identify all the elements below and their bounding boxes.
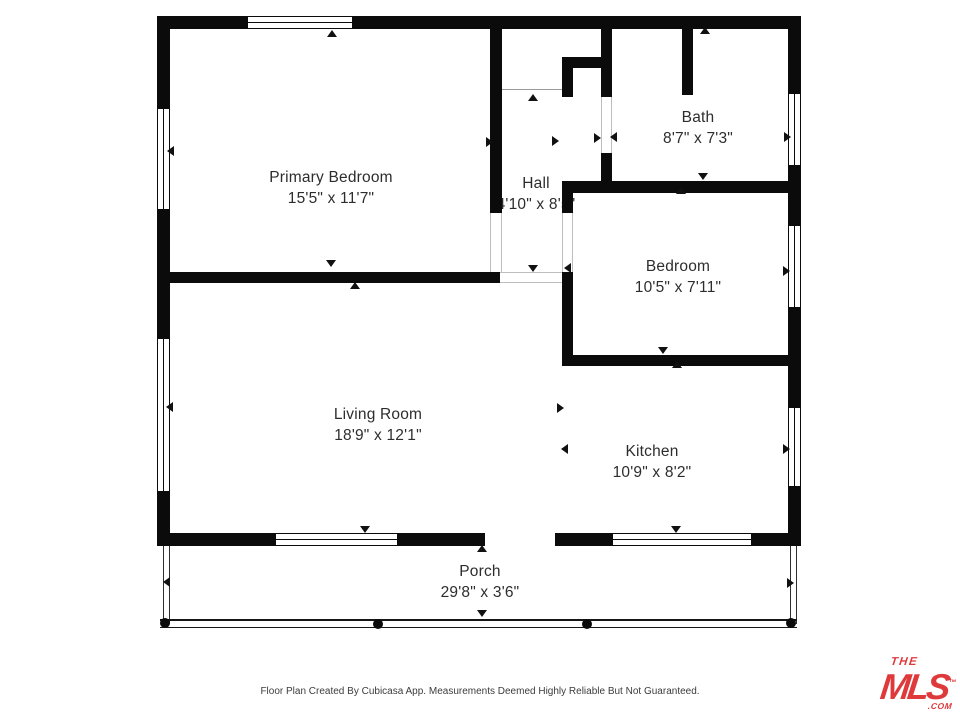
direction-marker <box>477 545 487 552</box>
direction-marker <box>700 27 710 34</box>
window-living-room-south <box>275 533 398 546</box>
porch-post <box>160 618 170 628</box>
wall-exterior-bottom <box>555 533 612 546</box>
room-dimensions: 8'7" x 7'3" <box>637 128 759 149</box>
window-primary-bedroom-west <box>157 108 170 210</box>
direction-marker <box>528 265 538 272</box>
window-kitchen-south <box>612 533 752 546</box>
wall-hall-nook-vertical <box>562 57 573 97</box>
direction-marker <box>360 526 370 533</box>
themls-logo: THE MLS™ .COM <box>878 657 960 710</box>
floor-plan: Primary Bedroom 15'5" x 11'7" Hall 4'10"… <box>0 0 960 720</box>
direction-marker <box>326 260 336 267</box>
wall-bath-divider <box>682 16 693 95</box>
direction-marker <box>783 266 790 276</box>
wall-exterior-bottom <box>752 533 801 546</box>
porch-post <box>786 618 796 628</box>
room-label-bedroom: Bedroom 10'5" x 7'11" <box>592 256 764 298</box>
door-opening-bath <box>601 97 612 153</box>
direction-marker <box>327 30 337 37</box>
room-dimensions: 15'5" x 11'7" <box>221 188 441 209</box>
direction-marker <box>676 187 686 194</box>
window-living-room-west <box>157 338 170 492</box>
room-dimensions: 10'5" x 7'11" <box>592 277 764 298</box>
wall-hall-east-upper <box>601 16 612 97</box>
room-name: Porch <box>395 561 565 582</box>
room-name: Primary Bedroom <box>221 167 441 188</box>
room-dimensions: 10'9" x 8'2" <box>566 462 738 483</box>
direction-marker <box>528 94 538 101</box>
porch-post <box>373 619 383 629</box>
room-dimensions: 29'8" x 3'6" <box>395 582 565 603</box>
direction-marker <box>784 132 791 142</box>
direction-marker <box>671 526 681 533</box>
room-label-kitchen: Kitchen 10'9" x 8'2" <box>566 441 738 483</box>
wall-bedroom-west-upper <box>562 193 573 213</box>
direction-marker <box>486 137 493 147</box>
logo-trademark: ™ <box>948 678 957 687</box>
window-bath-east <box>788 93 801 166</box>
room-name: Bath <box>637 107 759 128</box>
room-label-primary-bedroom: Primary Bedroom 15'5" x 11'7" <box>221 167 441 209</box>
direction-marker <box>163 577 170 587</box>
footer-disclaimer: Floor Plan Created By Cubicasa App. Meas… <box>0 686 960 697</box>
wall-exterior-bottom <box>398 533 485 546</box>
window-primary-bedroom-north <box>247 16 353 29</box>
direction-marker <box>167 146 174 156</box>
direction-marker <box>557 403 564 413</box>
room-name: Kitchen <box>566 441 738 462</box>
wall-hall-east-lower <box>601 153 612 183</box>
direction-marker <box>610 132 617 142</box>
wall-bedroom-west-lower <box>562 272 573 366</box>
logo-word-mls: MLS™ <box>878 669 960 705</box>
direction-marker <box>658 347 668 354</box>
room-dimensions: 18'9" x 12'1" <box>283 425 473 446</box>
direction-marker <box>594 133 601 143</box>
room-label-bath: Bath 8'7" x 7'3" <box>637 107 759 149</box>
wall-exterior-bottom <box>157 533 275 546</box>
direction-marker <box>787 578 794 588</box>
opening-hall-nook <box>502 89 562 90</box>
room-name: Bedroom <box>592 256 764 277</box>
direction-marker <box>564 263 571 273</box>
direction-marker <box>698 173 708 180</box>
door-opening-primary-bedroom <box>490 213 502 272</box>
direction-marker <box>783 444 790 454</box>
direction-marker <box>561 444 568 454</box>
opening-hall-to-living-room <box>500 272 562 283</box>
direction-marker <box>166 402 173 412</box>
direction-marker <box>477 610 487 617</box>
wall-primary-bedroom-south <box>157 272 500 283</box>
room-label-porch: Porch 29'8" x 3'6" <box>395 561 565 603</box>
porch-edge-bottom <box>160 619 797 628</box>
direction-marker <box>350 282 360 289</box>
room-label-living-room: Living Room 18'9" x 12'1" <box>283 404 473 446</box>
porch-post <box>582 619 592 629</box>
wall-hall-west <box>490 16 502 213</box>
direction-marker <box>552 136 559 146</box>
direction-marker <box>672 361 682 368</box>
room-name: Living Room <box>283 404 473 425</box>
